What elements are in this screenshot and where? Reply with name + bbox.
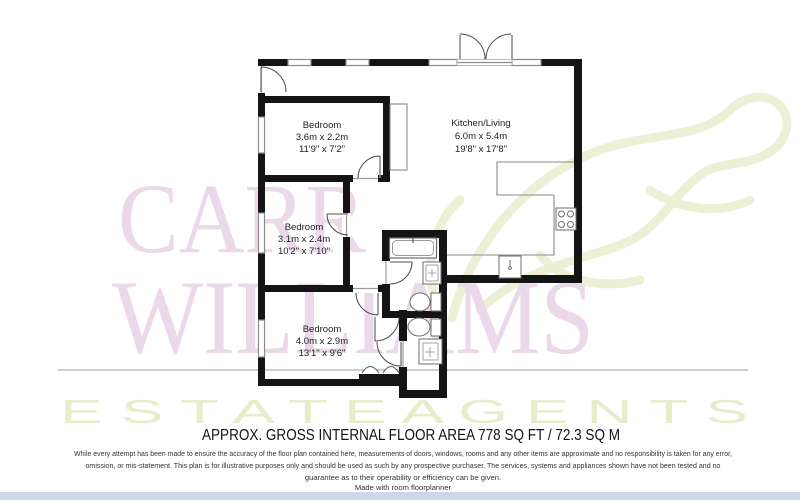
window-icon xyxy=(288,60,311,66)
svg-text:13'1" x 9'6": 13'1" x 9'6" xyxy=(299,348,346,359)
window-icon xyxy=(346,60,369,66)
svg-text:19'8" x 17'8": 19'8" x 17'8" xyxy=(455,144,507,155)
svg-text:Kitchen/Living: Kitchen/Living xyxy=(451,118,510,129)
svg-text:11'9" x 7'2": 11'9" x 7'2" xyxy=(299,144,345,155)
kitchen-sink-icon xyxy=(499,256,521,278)
svg-text:Bedroom: Bedroom xyxy=(303,120,342,131)
bedroom3-label: Bedroom 4.0m x 2.9m 13'1" x 9'6" xyxy=(296,324,348,359)
window-icon xyxy=(429,60,457,66)
bathtub-icon xyxy=(390,238,437,258)
svg-text:Bedroom: Bedroom xyxy=(285,222,324,233)
window-icon xyxy=(259,320,265,357)
floorplanner-credit: Made with room floorplanner xyxy=(355,483,452,492)
toilet-icon xyxy=(410,293,441,311)
floorplan-page: CARR WILLIAMS E S T A T E A G E N T S xyxy=(0,0,800,500)
bottom-accent-band xyxy=(0,492,800,500)
svg-text:10'2" x 7'10": 10'2" x 7'10" xyxy=(278,246,330,257)
disclaimer-line1: While every attempt has been made to ens… xyxy=(74,449,732,458)
svg-text:3.1m x 2.4m: 3.1m x 2.4m xyxy=(278,234,330,245)
toilet-icon xyxy=(408,318,441,336)
window-icon xyxy=(512,60,541,66)
svg-text:6.0m x 5.4m: 6.0m x 5.4m xyxy=(455,131,507,142)
disclaimer-line3: guarantee as to their operability or eff… xyxy=(305,473,501,482)
floorplan-canvas: CARR WILLIAMS E S T A T E A G E N T S xyxy=(0,0,800,500)
disclaimer-line2: omission, or mis-statement. This plan is… xyxy=(86,461,721,470)
kitchen-living-label: Kitchen/Living 6.0m x 5.4m 19'8" x 17'8" xyxy=(451,118,510,155)
svg-text:4.0m x 2.9m: 4.0m x 2.9m xyxy=(296,336,348,347)
sink-icon xyxy=(419,339,442,364)
bedroom1-label: Bedroom 3.6m x 2.2m 11'9" x 7'2" xyxy=(296,120,348,155)
bedroom2-label: Bedroom 3.1m x 2.4m 10'2" x 7'10" xyxy=(278,222,330,257)
svg-text:3.6m x 2.2m: 3.6m x 2.2m xyxy=(296,132,348,143)
stove-icon xyxy=(556,208,576,230)
watermark-brand-line3: E S T A T E A G E N T S xyxy=(60,393,748,430)
window-icon xyxy=(259,117,265,153)
svg-text:Bedroom: Bedroom xyxy=(303,324,342,335)
floor-area-title: APPROX. GROSS INTERNAL FLOOR AREA 778 SQ… xyxy=(202,427,620,444)
sink-icon xyxy=(423,262,441,284)
window-icon xyxy=(259,213,265,253)
